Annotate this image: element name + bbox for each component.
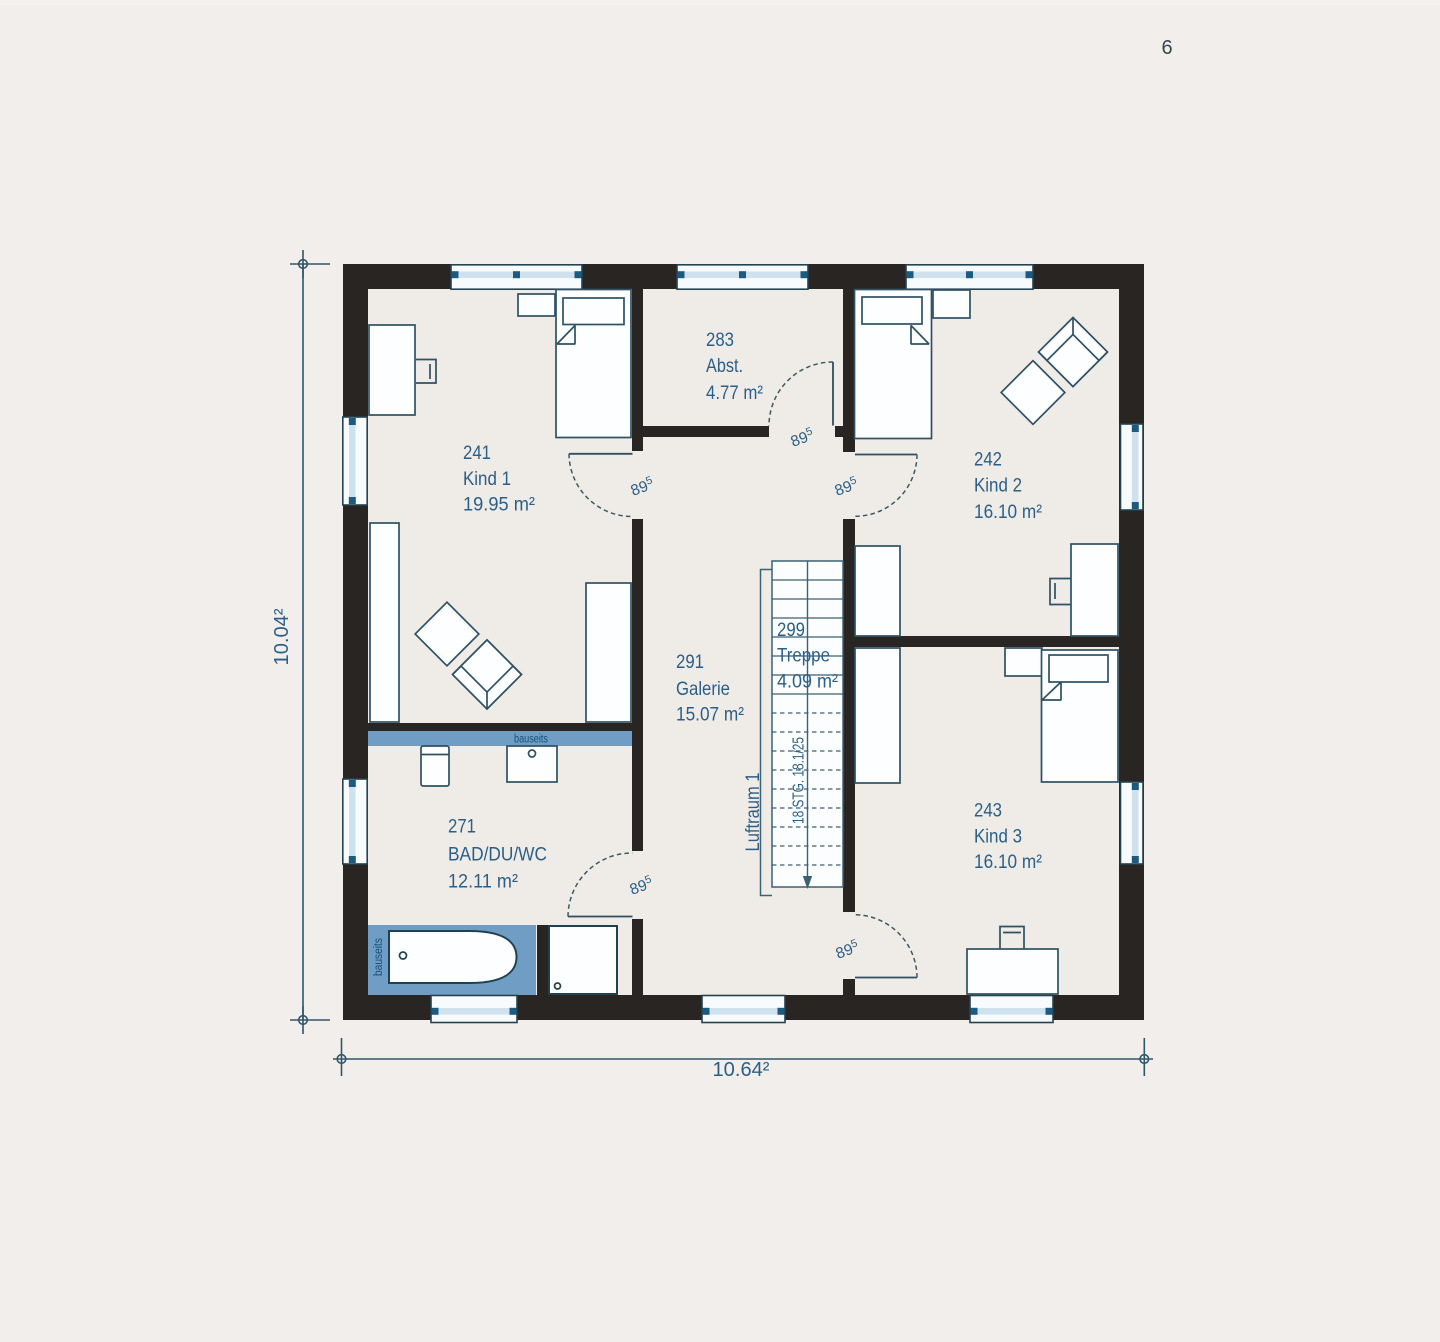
svg-text:16.10 m²: 16.10 m² bbox=[974, 501, 1042, 523]
svg-text:4.09 m²: 4.09 m² bbox=[777, 671, 838, 693]
svg-text:6: 6 bbox=[1161, 37, 1172, 59]
svg-text:4.77 m²: 4.77 m² bbox=[706, 382, 763, 404]
svg-text:Abst.: Abst. bbox=[706, 355, 743, 377]
svg-text:243: 243 bbox=[974, 800, 1002, 822]
svg-text:Treppe: Treppe bbox=[777, 645, 830, 667]
svg-text:19.95 m²: 19.95 m² bbox=[463, 494, 535, 516]
svg-text:bauseits: bauseits bbox=[373, 938, 385, 976]
svg-text:10.04²: 10.04² bbox=[271, 608, 293, 665]
svg-text:Galerie: Galerie bbox=[676, 678, 730, 700]
svg-text:241: 241 bbox=[463, 442, 491, 464]
svg-text:16.10 m²: 16.10 m² bbox=[974, 851, 1042, 873]
svg-text:bauseits: bauseits bbox=[514, 734, 548, 746]
svg-text:12.11 m²: 12.11 m² bbox=[448, 871, 518, 893]
svg-text:10.64²: 10.64² bbox=[713, 1059, 770, 1081]
svg-text:Kind 3: Kind 3 bbox=[974, 826, 1022, 848]
svg-text:271: 271 bbox=[448, 816, 476, 838]
svg-text:291: 291 bbox=[676, 651, 704, 673]
svg-text:BAD/DU/WC: BAD/DU/WC bbox=[448, 844, 547, 866]
svg-text:15.07 m²: 15.07 m² bbox=[676, 704, 744, 726]
svg-text:18 STG. 18.1/25: 18 STG. 18.1/25 bbox=[791, 737, 808, 824]
svg-text:Luftraum 1: Luftraum 1 bbox=[742, 773, 764, 852]
svg-text:Kind 1: Kind 1 bbox=[463, 468, 511, 490]
svg-text:299: 299 bbox=[777, 619, 805, 641]
svg-text:Kind 2: Kind 2 bbox=[974, 475, 1022, 497]
svg-text:242: 242 bbox=[974, 449, 1002, 471]
svg-text:283: 283 bbox=[706, 329, 734, 351]
